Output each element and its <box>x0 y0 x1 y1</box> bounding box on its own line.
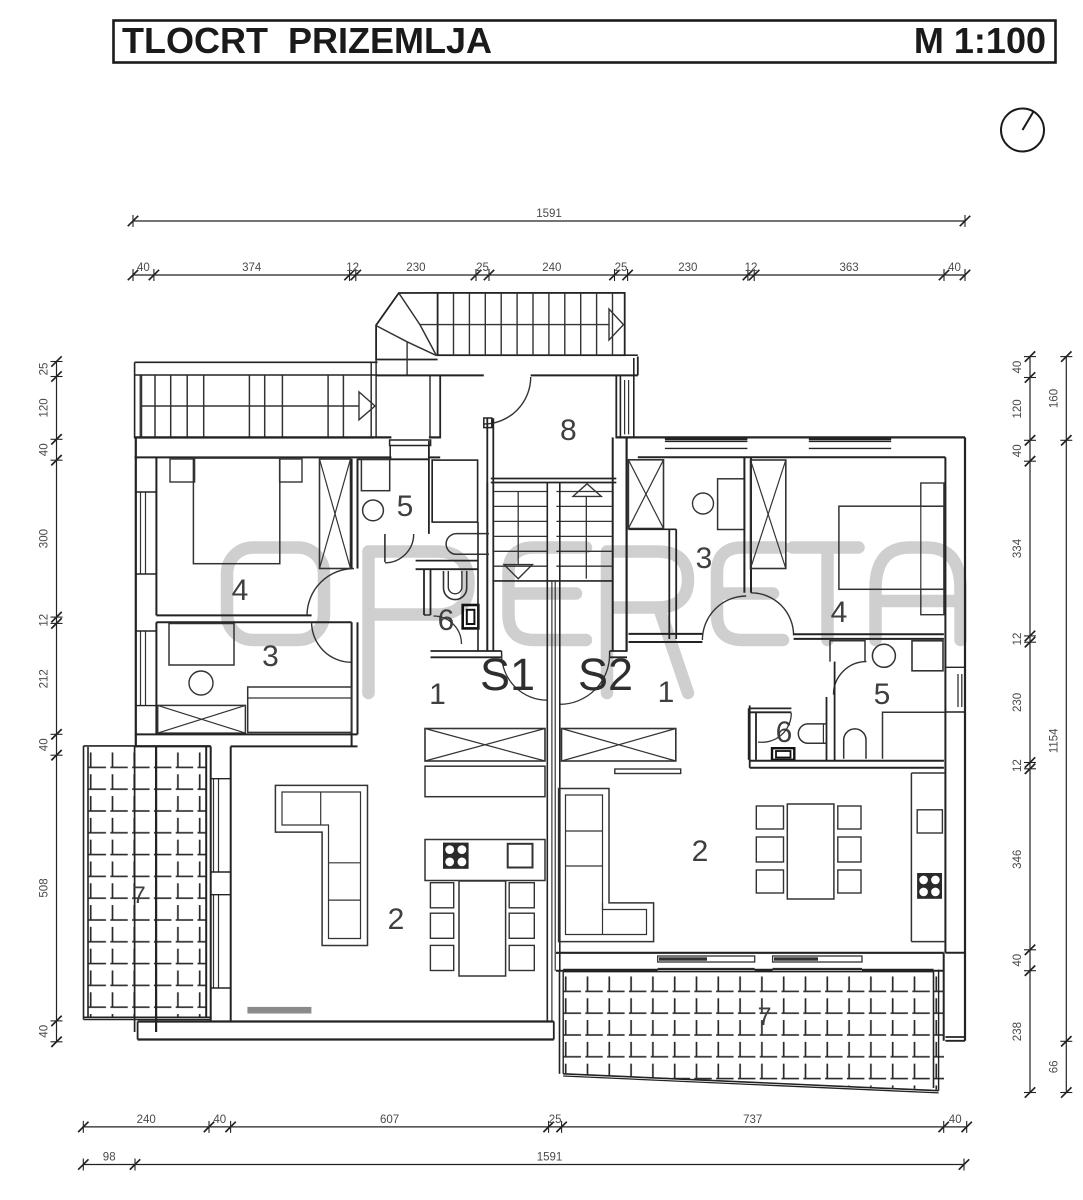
svg-text:40: 40 <box>39 443 51 456</box>
svg-text:374: 374 <box>242 262 262 274</box>
svg-text:160: 160 <box>1048 389 1060 408</box>
svg-text:40: 40 <box>1012 444 1024 457</box>
svg-text:40: 40 <box>1012 954 1024 967</box>
svg-text:212: 212 <box>39 669 51 688</box>
svg-text:120: 120 <box>39 398 51 417</box>
svg-text:363: 363 <box>840 262 859 274</box>
svg-text:1154: 1154 <box>1048 728 1060 753</box>
svg-text:238: 238 <box>1012 1022 1024 1041</box>
svg-text:4: 4 <box>831 596 848 629</box>
svg-text:607: 607 <box>380 1114 399 1126</box>
svg-text:5: 5 <box>874 678 891 711</box>
svg-text:2: 2 <box>388 903 405 936</box>
svg-text:230: 230 <box>678 262 697 274</box>
svg-text:TLOCRT PRIZEMLJA: TLOCRT PRIZEMLJA <box>122 20 492 61</box>
svg-text:S2: S2 <box>578 649 633 700</box>
svg-text:S1: S1 <box>480 649 535 700</box>
svg-text:230: 230 <box>1012 693 1024 712</box>
svg-text:3: 3 <box>262 640 279 673</box>
svg-text:66: 66 <box>1048 1061 1060 1074</box>
svg-text:40: 40 <box>39 738 51 751</box>
svg-text:12: 12 <box>346 262 359 274</box>
svg-text:40: 40 <box>948 262 961 274</box>
svg-text:2: 2 <box>692 835 709 868</box>
svg-text:7: 7 <box>758 1003 772 1031</box>
svg-text:3: 3 <box>696 542 713 575</box>
svg-text:300: 300 <box>39 529 51 548</box>
svg-text:40: 40 <box>213 1114 226 1126</box>
svg-text:40: 40 <box>949 1114 962 1126</box>
svg-text:40: 40 <box>137 262 150 274</box>
svg-text:M 1:100: M 1:100 <box>914 20 1046 61</box>
svg-text:1: 1 <box>429 678 446 711</box>
svg-text:12: 12 <box>1012 633 1024 646</box>
svg-text:240: 240 <box>542 262 561 274</box>
svg-text:1591: 1591 <box>537 1152 563 1164</box>
svg-text:98: 98 <box>103 1152 116 1164</box>
svg-text:25: 25 <box>39 363 51 376</box>
svg-text:12: 12 <box>1012 759 1024 772</box>
svg-text:508: 508 <box>39 878 51 897</box>
svg-text:40: 40 <box>1012 361 1024 374</box>
svg-text:230: 230 <box>406 262 425 274</box>
svg-text:334: 334 <box>1012 538 1024 558</box>
svg-text:5: 5 <box>397 490 414 523</box>
svg-text:25: 25 <box>615 262 628 274</box>
svg-text:12: 12 <box>745 262 758 274</box>
svg-text:6: 6 <box>438 604 455 637</box>
svg-text:1: 1 <box>658 676 675 709</box>
svg-text:7: 7 <box>132 882 145 909</box>
svg-text:120: 120 <box>1012 399 1024 418</box>
svg-text:1591: 1591 <box>536 208 562 220</box>
svg-text:8: 8 <box>560 414 577 447</box>
svg-text:4: 4 <box>232 574 249 607</box>
svg-text:737: 737 <box>743 1114 762 1126</box>
svg-text:346: 346 <box>1012 850 1024 869</box>
svg-text:240: 240 <box>137 1114 156 1126</box>
svg-text:40: 40 <box>39 1025 51 1038</box>
svg-text:12: 12 <box>39 614 51 627</box>
svg-text:25: 25 <box>549 1114 562 1126</box>
svg-text:25: 25 <box>476 262 489 274</box>
